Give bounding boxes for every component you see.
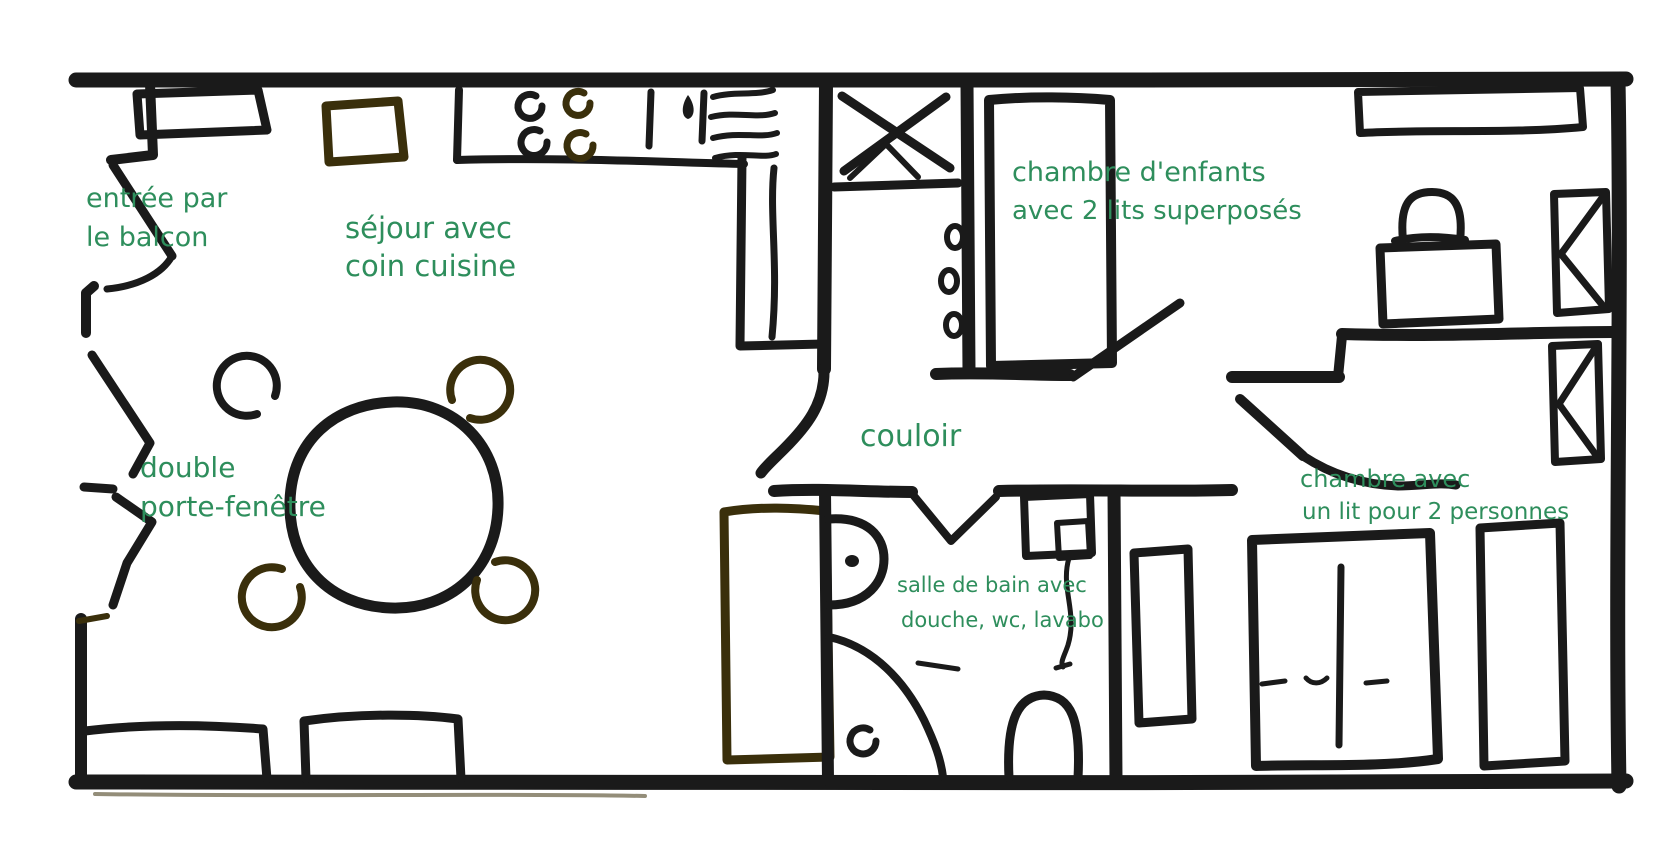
double-bed-center-line <box>1339 567 1341 745</box>
label-chambre-enfants-line2: avec 2 lits superposés <box>1012 196 1302 226</box>
toilet-icon <box>1009 695 1079 778</box>
counter-divider-2 <box>702 93 704 141</box>
wall-sejour-corridor <box>824 84 826 369</box>
corridor-east-beak-top <box>1240 399 1303 456</box>
bedroom-divider-wall <box>1342 332 1613 335</box>
kitchen-cabinet-bottom <box>740 344 823 346</box>
label-salle-de-bain-line2: douche, wc, lavabo <box>901 608 1104 632</box>
label-porte-fenetre-line2: porte-fenêtre <box>140 490 326 523</box>
floor-plan-sketch: entrée par le balcon séjour avec coin cu… <box>0 0 1662 848</box>
stove-burner-icon <box>521 130 547 156</box>
bunk-bed <box>989 97 1112 366</box>
kitchen-cabinet-left <box>740 158 742 345</box>
wall-right <box>1618 80 1620 786</box>
bed-blanket-dash <box>1366 681 1387 683</box>
bathroom <box>825 491 1116 780</box>
bathroom-east-wall <box>1114 491 1116 780</box>
bed-blanket-dash <box>1262 681 1285 684</box>
kitchen-cabinet-door <box>772 168 775 337</box>
corridor-funnel-west <box>761 369 824 473</box>
french-door-hinge <box>84 487 113 489</box>
shower-enclosure-arc <box>829 637 943 777</box>
coat-hook-icon <box>946 314 962 336</box>
children-bedroom <box>834 84 1609 371</box>
bedroom-divider-step-b <box>1338 336 1342 377</box>
coat-hook-icon <box>941 270 957 292</box>
wardrobe-door-zigzag <box>1559 350 1596 455</box>
sejour-east-wall <box>761 84 826 473</box>
sejour-seating <box>85 508 830 779</box>
wardrobe-door-zigzag <box>1561 198 1604 307</box>
desk <box>1380 244 1499 324</box>
corridor-north-wall <box>936 373 1070 375</box>
washbasin-drain-dot <box>845 555 859 567</box>
entrance-door-swing-arc <box>107 256 172 289</box>
label-chambre-enfants-line1: chambre d'enfants <box>1012 157 1266 188</box>
floor-drain-icon <box>850 728 876 754</box>
stove-burner-icon <box>518 94 542 118</box>
tall-wardrobe <box>724 508 830 760</box>
double-bed <box>1252 533 1438 766</box>
corridor-south-wall-a <box>774 490 912 492</box>
chair-icon <box>450 360 510 420</box>
label-chambre-double-line2: un lit pour 2 personnes <box>1302 499 1569 525</box>
counter-left-edge <box>457 90 459 160</box>
counter-front-edge <box>457 159 744 164</box>
bathroom-shelf-line <box>918 663 958 669</box>
desk-chair-seat <box>1395 237 1465 241</box>
chair-icon <box>217 356 277 416</box>
counter-divider-1 <box>649 92 651 146</box>
dish-rack-line <box>713 133 777 138</box>
stove-burner-icon <box>567 133 593 159</box>
narrow-wardrobe <box>1134 549 1192 723</box>
label-porte-fenetre-line1: double <box>140 451 235 484</box>
label-sejour-line1: séjour avec <box>345 211 512 245</box>
children-room-west-wall <box>967 84 969 371</box>
shower-hose-tip <box>1056 664 1070 668</box>
label-entree-line2: le balcon <box>86 222 208 253</box>
wall-top <box>76 78 1626 80</box>
floor-plan-canvas: entrée par le balcon séjour avec coin cu… <box>0 0 1662 848</box>
wall-bottom-smudge <box>95 794 645 796</box>
bench-sofa <box>85 726 267 780</box>
closet-bottom-edge <box>834 183 958 187</box>
label-salle-de-bain-line1: salle de bain avec <box>897 573 1087 597</box>
label-entree-line1: entrée par <box>86 183 228 214</box>
label-chambre-double-line1: chambre avec <box>1300 465 1470 493</box>
dish-rack-line <box>711 113 775 117</box>
label-sejour-line2: coin cuisine <box>345 249 516 283</box>
dish-rack-line <box>713 90 773 97</box>
bed-blanket-dash <box>1306 678 1327 683</box>
wall-left-stub <box>86 286 94 333</box>
label-couloir: couloir <box>860 419 962 454</box>
stove-burner-icon <box>566 91 590 115</box>
master-bedroom <box>1134 344 1601 766</box>
side-table <box>326 101 404 162</box>
chair-icon <box>242 567 302 627</box>
bathroom-door-leaf-icon <box>914 496 996 541</box>
coat-hook-icon <box>947 226 963 248</box>
bench-sofa <box>304 715 461 779</box>
sink-drop-icon <box>683 95 694 119</box>
side-bench <box>1480 523 1565 766</box>
wall-shelf <box>1358 88 1583 133</box>
